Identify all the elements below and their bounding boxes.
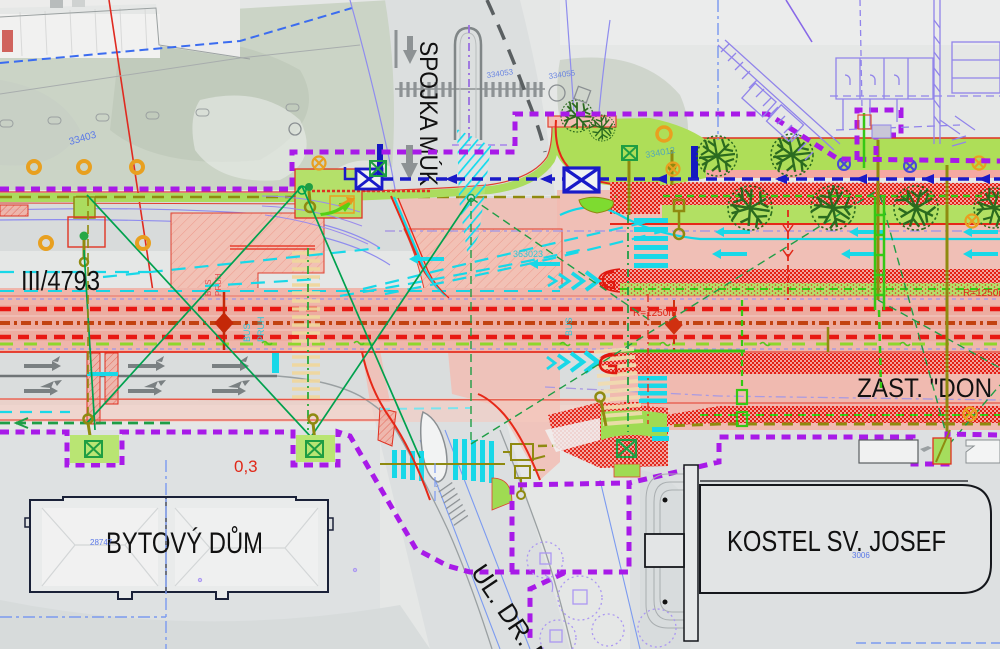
svg-text:R=1250m: R=1250m [633, 308, 677, 319]
svg-text:SPOJKA MÚK: SPOJKA MÚK [414, 41, 443, 186]
svg-text:KOSTEL SV. JOSEF: KOSTEL SV. JOSEF [727, 526, 946, 558]
svg-text:0,3: 0,3 [234, 457, 258, 476]
svg-text:BUS: BUS [564, 317, 574, 336]
svg-text:R=1250m: R=1250m [963, 288, 1000, 299]
svg-text:ZAST. "DON B: ZAST. "DON B [857, 373, 1000, 403]
svg-text:3006: 3006 [852, 551, 870, 560]
svg-text:28747: 28747 [90, 538, 113, 547]
svg-text:BYTOVÝ DŮM: BYTOVÝ DŮM [106, 526, 263, 560]
svg-text:PRUH: PRUH [256, 316, 266, 342]
svg-text:III/4793: III/4793 [21, 265, 100, 296]
svg-text:BUS: BUS [242, 323, 252, 342]
svg-text:363023: 363023 [513, 249, 543, 259]
